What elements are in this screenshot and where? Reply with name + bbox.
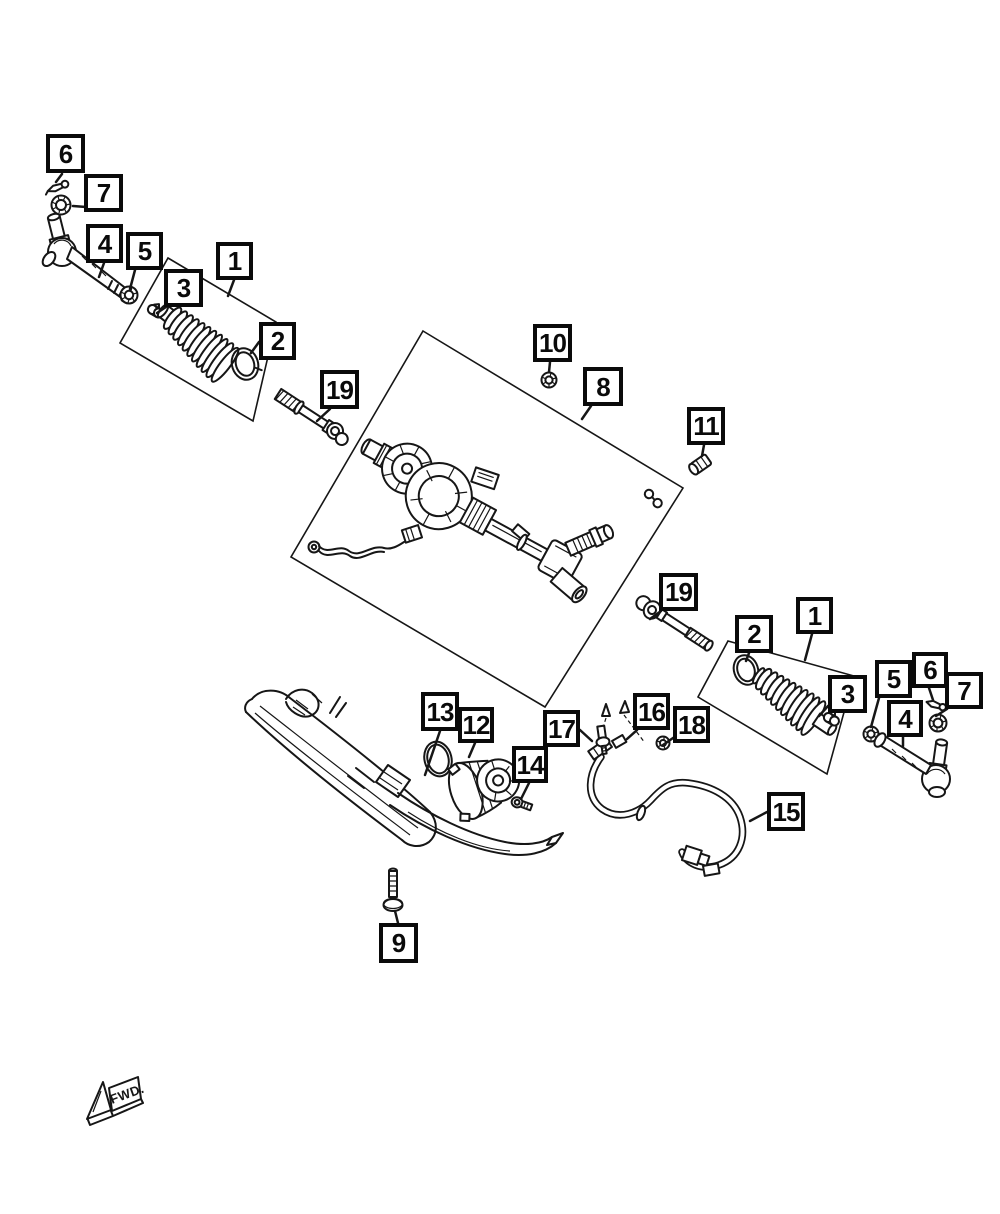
callout-13[interactable]: 13 xyxy=(421,692,459,731)
leader-line-6-right xyxy=(929,688,933,700)
leader-line-14 xyxy=(521,783,529,799)
leader-line-8 xyxy=(582,406,591,419)
callout-8[interactable]: 8 xyxy=(583,367,623,406)
leader-line-17 xyxy=(580,730,592,741)
callout-19-right[interactable]: 19 xyxy=(659,573,698,611)
callout-14[interactable]: 14 xyxy=(512,746,548,783)
callout-3-left[interactable]: 3 xyxy=(164,269,203,307)
steering-gear-assembly xyxy=(309,401,665,609)
callout-7-right[interactable]: 7 xyxy=(945,672,983,709)
callout-17[interactable]: 17 xyxy=(543,710,580,747)
isolator-bushing xyxy=(687,454,711,476)
callout-9[interactable]: 9 xyxy=(379,923,418,963)
callout-1-left[interactable]: 1 xyxy=(216,242,253,280)
parts-diagram-page: FWD. 67453121910811192135674131217141618… xyxy=(0,0,1000,1214)
leader-line-1-right xyxy=(805,634,812,660)
callout-5-right[interactable]: 5 xyxy=(875,660,912,698)
leader-line-1-left xyxy=(228,280,234,296)
leader-line-12 xyxy=(469,743,475,757)
leader-line-16 xyxy=(627,730,637,739)
callout-19-left[interactable]: 19 xyxy=(320,370,359,409)
callout-7-left[interactable]: 7 xyxy=(84,174,123,212)
callout-3-right[interactable]: 3 xyxy=(828,675,867,713)
leader-line-15 xyxy=(750,812,767,821)
crossmember-bolt xyxy=(384,869,403,912)
callout-12[interactable]: 12 xyxy=(458,707,494,743)
outer-tie-rod-right xyxy=(872,731,950,797)
callout-6-left[interactable]: 6 xyxy=(46,134,85,173)
callout-11[interactable]: 11 xyxy=(687,407,725,445)
gear-bracket-clips xyxy=(642,489,665,509)
leader-line-9 xyxy=(395,911,398,923)
leader-line-6-left xyxy=(56,174,62,182)
callout-4-right[interactable]: 4 xyxy=(887,700,923,737)
bellow-boot-left xyxy=(145,296,242,385)
callout-4-left[interactable]: 4 xyxy=(86,224,123,263)
callout-6-right[interactable]: 6 xyxy=(912,652,948,688)
gear-wiring-pigtail xyxy=(309,525,423,558)
jam-nut-right xyxy=(930,715,947,732)
callout-2-right[interactable]: 2 xyxy=(735,615,773,653)
gear-mount-nut xyxy=(542,373,557,388)
callout-10[interactable]: 10 xyxy=(533,324,572,362)
callout-16[interactable]: 16 xyxy=(633,693,670,730)
callout-18[interactable]: 18 xyxy=(673,706,710,743)
grease-fitting-screw-right xyxy=(926,699,947,711)
leader-line-10 xyxy=(549,362,550,372)
jam-nut-left xyxy=(52,196,71,215)
callout-5-left[interactable]: 5 xyxy=(126,232,163,270)
callout-1-right[interactable]: 1 xyxy=(796,597,833,634)
fwd-direction-arrow: FWD. xyxy=(87,1077,146,1125)
leader-line-5-right xyxy=(871,698,879,727)
diagram-artwork: FWD. xyxy=(0,0,1000,1214)
leader-line-2-left xyxy=(251,342,259,353)
callout-15[interactable]: 15 xyxy=(767,792,805,831)
pressure-hose-assembly xyxy=(588,735,742,876)
callout-2-left[interactable]: 2 xyxy=(259,322,296,360)
